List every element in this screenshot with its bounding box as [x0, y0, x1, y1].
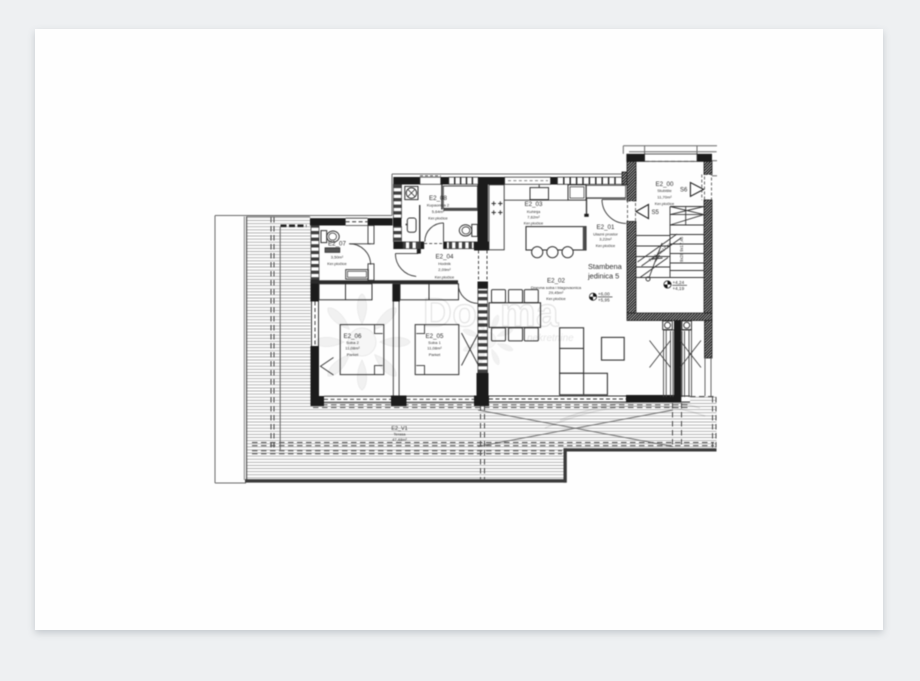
svg-text:Ker.pločice: Ker.pločice — [596, 243, 616, 248]
svg-text:Ker.pločice: Ker.pločice — [524, 221, 544, 226]
svg-text:E2_00: E2_00 — [656, 181, 674, 188]
svg-text:2,09m²: 2,09m² — [438, 267, 451, 272]
svg-text:11,70m²: 11,70m² — [657, 195, 672, 200]
svg-text:E2_01: E2_01 — [597, 224, 615, 231]
svg-text:3,50m²: 3,50m² — [331, 255, 344, 260]
svg-text:E2_06: E2_06 — [344, 333, 362, 340]
svg-text:E2_04: E2_04 — [436, 254, 454, 261]
svg-text:Kuhinja: Kuhinja — [527, 209, 541, 214]
svg-text:S5: S5 — [652, 210, 660, 216]
svg-text:Parket: Parket — [429, 352, 441, 357]
svg-text:Ker.pločice: Ker.pločice — [546, 296, 566, 301]
svg-text:Soba 1: Soba 1 — [428, 340, 441, 345]
svg-text:9x28 9x17,46: 9x28 9x17,46 — [679, 236, 684, 262]
svg-text:+5,95: +5,95 — [598, 298, 610, 303]
svg-text:+6,00: +6,00 — [598, 292, 610, 297]
svg-text:29,45m²: 29,45m² — [549, 290, 564, 295]
svg-text:11,08m²: 11,08m² — [345, 346, 360, 351]
svg-text:E2_03: E2_03 — [525, 201, 543, 208]
svg-text:jedinica 5: jedinica 5 — [587, 272, 619, 281]
svg-text:nekretnine: nekretnine — [527, 333, 574, 344]
svg-text:Terasa: Terasa — [393, 432, 406, 437]
svg-text:E2_07: E2_07 — [328, 241, 346, 248]
svg-text:Stambena: Stambena — [588, 262, 623, 271]
svg-text:+4,24: +4,24 — [673, 280, 685, 285]
svg-text:Ker.pločice: Ker.pločice — [435, 275, 455, 280]
svg-text:11,08m²: 11,08m² — [427, 346, 442, 351]
svg-text:E2_02: E2_02 — [547, 278, 565, 285]
svg-text:+4,19: +4,19 — [673, 286, 685, 291]
svg-text:5,64m²: 5,64m² — [432, 209, 445, 214]
svg-text:Stubište: Stubište — [657, 188, 672, 193]
svg-text:Kupaonica 2: Kupaonica 2 — [427, 203, 450, 208]
svg-text:Do: Do — [423, 291, 477, 335]
svg-text:Ker.pločice: Ker.pločice — [327, 261, 347, 266]
svg-text:E2_08: E2_08 — [429, 195, 447, 202]
svg-text:E2_05: E2_05 — [426, 333, 444, 340]
svg-text:Hodnik: Hodnik — [438, 261, 450, 266]
svg-text:Parket: Parket — [347, 352, 359, 357]
svg-text:Ker.pločice: Ker.pločice — [428, 216, 448, 221]
svg-text:3,22m²: 3,22m² — [599, 237, 612, 242]
svg-text:Soba 2: Soba 2 — [346, 340, 359, 345]
svg-text:7,62m²: 7,62m² — [527, 215, 540, 220]
svg-text:Ker.pločice: Ker.pločice — [655, 201, 675, 206]
svg-text:47,48m²: 47,48m² — [392, 437, 407, 442]
svg-text:S6: S6 — [680, 187, 688, 193]
